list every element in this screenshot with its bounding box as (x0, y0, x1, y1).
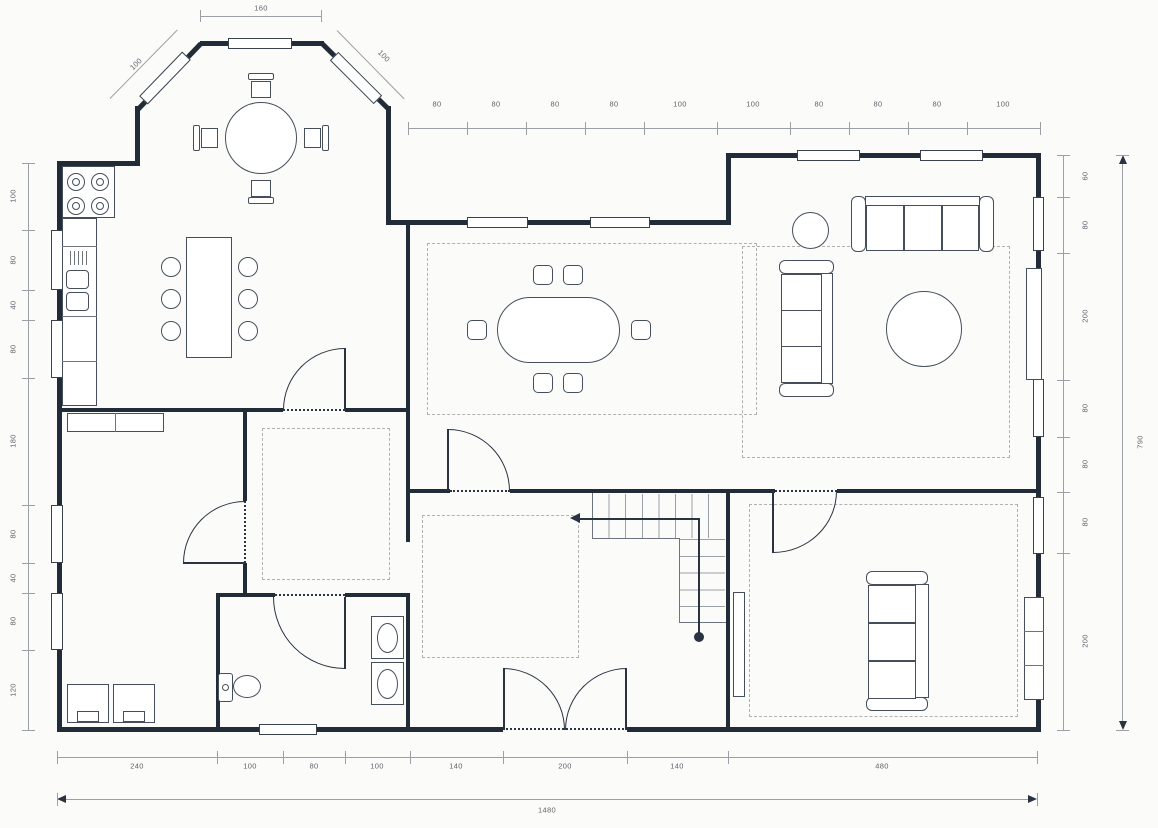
chair-back (193, 125, 200, 151)
stove-burner (72, 178, 80, 186)
window (1033, 379, 1044, 437)
door-leaf (772, 491, 774, 553)
door-arc (448, 429, 510, 491)
dimension-line (110, 30, 178, 99)
dimension-tick (526, 122, 527, 135)
sofa-cushion (866, 205, 904, 251)
window (590, 217, 650, 228)
dimension-tick (57, 751, 58, 764)
wall (406, 222, 410, 542)
seat-cushion (77, 711, 99, 722)
shelf-divider (1024, 665, 1044, 666)
shelf (1024, 597, 1044, 700)
sofa-back (821, 273, 833, 384)
dimension-tick (790, 122, 791, 135)
seat-cushion (123, 711, 145, 722)
dim-label: 100 (9, 189, 18, 202)
dimension-tick (1057, 492, 1070, 493)
dim-label: 180 (9, 434, 18, 447)
dim-label: 80 (933, 100, 942, 109)
sofa-cushion (781, 346, 822, 383)
stairs-outline (592, 538, 680, 539)
counter-divider (62, 361, 97, 362)
chair (161, 257, 181, 277)
dimension-tick (345, 751, 346, 764)
dim-label: 100 (996, 100, 1009, 109)
chair (238, 289, 258, 309)
french-door-left-arc (503, 668, 565, 730)
dimension-tick (1057, 253, 1070, 254)
dimension-total-line (62, 799, 1033, 800)
french-door-right-arc (565, 668, 627, 730)
dim-label: 200 (558, 762, 571, 771)
dimension-line (200, 16, 322, 17)
door-arc (273, 597, 345, 669)
dimension-line (57, 757, 1037, 758)
dimension-tick (22, 378, 35, 379)
dimension-tick (1116, 155, 1129, 156)
stove-burner (96, 178, 104, 186)
window (1033, 197, 1044, 251)
counter-divider (62, 316, 97, 317)
chair-seat (201, 128, 218, 148)
stairs-outline (679, 538, 680, 623)
dim-label: 80 (1081, 221, 1090, 230)
dim-label: 80 (9, 256, 18, 265)
dimension-line (28, 163, 29, 730)
sofa-arm (851, 196, 866, 252)
stairs-outline (592, 493, 593, 539)
dim-label: 80 (9, 345, 18, 354)
wall (837, 489, 1041, 493)
dimension-tick (1037, 751, 1038, 764)
dim-label: 100 (376, 48, 392, 64)
arrowhead-right (1028, 795, 1037, 803)
kitchen-table (186, 237, 232, 358)
dim-label: 40 (9, 301, 18, 310)
dim-label: 100 (370, 762, 383, 771)
stove-burner (96, 202, 104, 210)
dim-label: 80 (433, 100, 442, 109)
dim-label: 80 (9, 617, 18, 626)
dimension-tick (200, 10, 201, 22)
dimension-tick (1057, 730, 1070, 731)
stairs-direction-line (698, 518, 700, 638)
cabinet-divider (115, 413, 116, 432)
dim-label: 80 (1081, 518, 1090, 527)
stairs-direction-line (580, 518, 699, 520)
dim-label: 80 (551, 100, 560, 109)
chair (563, 265, 583, 285)
dim-label: 80 (310, 762, 319, 771)
dim-label: 140 (449, 762, 462, 771)
chair-back (322, 125, 329, 151)
wall (406, 595, 410, 730)
faucet-lines (74, 251, 75, 265)
dim-label: 80 (492, 100, 501, 109)
sofa-arm (866, 571, 928, 585)
dimension-tick (644, 122, 645, 135)
window (259, 724, 317, 735)
stairs-upper-flight (592, 494, 725, 538)
dimension-tick (908, 122, 909, 135)
wall (726, 489, 730, 732)
dim-label: 120 (9, 683, 18, 696)
dimension-tick (1116, 730, 1129, 731)
wall (345, 593, 410, 597)
shelf-divider (1024, 631, 1044, 632)
stairs-arrowhead (570, 513, 580, 523)
sideboard (1026, 268, 1042, 380)
sofa-cushion (868, 661, 916, 699)
dimension-line (1063, 155, 1064, 730)
dim-total-label: 1480 (538, 806, 556, 815)
wall (510, 489, 731, 493)
dim-label: 140 (670, 762, 683, 771)
door-leaf (503, 668, 505, 730)
dimension-tick (22, 290, 35, 291)
window (51, 505, 63, 563)
arrowhead-down (1119, 721, 1127, 730)
floor-plan: 160 100 100 80 80 80 80 100 100 80 80 80… (0, 0, 1158, 828)
dimension-line (408, 128, 1040, 129)
chair (238, 321, 258, 341)
dimension-tick (22, 650, 35, 651)
sofa-arm (779, 260, 834, 274)
sofa-cushion (868, 585, 916, 623)
window (330, 52, 382, 104)
round-rug (886, 291, 962, 367)
chair (161, 289, 181, 309)
toilet-bowl (233, 675, 261, 698)
dimension-tick (22, 505, 35, 506)
wall (216, 595, 220, 730)
window (920, 150, 983, 161)
chair-back (248, 197, 274, 204)
faucet-lines (78, 251, 79, 265)
dimension-tick (321, 10, 322, 22)
sofa-cushion (942, 205, 979, 251)
dim-label: 240 (130, 762, 143, 771)
side-table (792, 212, 829, 249)
dim-label: 480 (875, 762, 888, 771)
wall (216, 593, 275, 597)
counter-divider (62, 246, 97, 247)
chair (238, 257, 258, 277)
dimension-tick (22, 593, 35, 594)
sofa-cushion (904, 205, 942, 251)
arrowhead-left (57, 795, 66, 803)
chair (161, 321, 181, 341)
study-rug (262, 428, 390, 580)
dimension-tick (728, 751, 729, 764)
window (797, 150, 860, 161)
dim-label: 80 (815, 100, 824, 109)
dim-label: 80 (9, 530, 18, 539)
dimension-tick (22, 730, 35, 731)
sofa-back (915, 584, 929, 698)
chair-seat (251, 81, 271, 98)
wall (386, 220, 731, 225)
dim-label: 80 (1081, 404, 1090, 413)
wall (726, 489, 775, 493)
dimension-tick (22, 163, 35, 164)
wall (135, 106, 140, 165)
dimension-tick (57, 793, 58, 806)
door-leaf (183, 562, 245, 564)
wall (406, 489, 450, 493)
dimension-tick (408, 122, 409, 135)
dim-label: 100 (673, 100, 686, 109)
stairs-start-dot (694, 632, 704, 642)
kitchen-sink-basin (66, 292, 89, 311)
wall (627, 727, 1041, 732)
dimension-tick (22, 230, 35, 231)
dim-label: 160 (254, 4, 267, 13)
dim-label: 60 (1081, 172, 1090, 181)
dimension-tick (717, 122, 718, 135)
dim-label: 80 (610, 100, 619, 109)
sofa-cushion (781, 274, 822, 311)
dimension-tick (503, 751, 504, 764)
sofa-arm (979, 196, 994, 252)
door-leaf (447, 429, 449, 491)
sofa-cushion (781, 310, 822, 347)
chair-seat (251, 180, 271, 197)
dimension-tick (22, 320, 35, 321)
dimension-tick (1057, 155, 1070, 156)
radiator (733, 592, 745, 697)
dimension-tick (849, 122, 850, 135)
dimension-tick (1057, 380, 1070, 381)
dim-label: 200 (1081, 634, 1090, 647)
stairs-outline (679, 622, 726, 623)
dim-total-label: 790 (1136, 435, 1145, 448)
door-arc (283, 348, 345, 410)
sofa-cushion (868, 623, 916, 661)
dimension-tick (410, 751, 411, 764)
wall (726, 153, 1041, 158)
dim-label: 80 (874, 100, 883, 109)
dimension-tick (283, 751, 284, 764)
dim-label: 80 (1081, 460, 1090, 469)
wall (243, 563, 247, 597)
wall (345, 408, 410, 412)
dim-label: 100 (128, 56, 144, 72)
dimension-tick (217, 751, 218, 764)
sofa-arm (779, 383, 834, 397)
door-arc (183, 501, 245, 563)
door-leaf (344, 348, 346, 410)
faucet-lines (82, 251, 83, 265)
dimension-tick (1057, 437, 1070, 438)
kitchen-sink-basin (66, 270, 89, 289)
chair (563, 373, 583, 393)
hall-rug (422, 515, 579, 658)
dim-label: 100 (746, 100, 759, 109)
dimension-tick (585, 122, 586, 135)
wall (243, 410, 247, 501)
window (1033, 497, 1044, 554)
dimension-tick (627, 751, 628, 764)
dimension-tick (1057, 197, 1070, 198)
dimension-tick (467, 122, 468, 135)
stove-burner (72, 202, 80, 210)
sofa-arm (866, 697, 928, 711)
faucet-lines (86, 251, 87, 265)
chair (533, 265, 553, 285)
sink-basin (377, 623, 398, 653)
window (228, 38, 292, 49)
oval-dining-table (497, 297, 620, 363)
chair (631, 320, 651, 340)
chair (467, 320, 487, 340)
window (51, 593, 63, 650)
dimension-tick (1037, 793, 1038, 806)
dim-label: 40 (9, 574, 18, 583)
dimension-tick (967, 122, 968, 135)
chair-back (248, 73, 274, 80)
toilet-button (222, 684, 229, 691)
window (467, 217, 528, 228)
wall (59, 408, 283, 412)
faucet-lines (70, 251, 71, 265)
arrowhead-up (1119, 155, 1127, 164)
dim-label: 200 (1081, 309, 1090, 322)
door-leaf (344, 597, 346, 669)
dimension-tick (1040, 122, 1041, 135)
dimension-tick (22, 563, 35, 564)
chair (533, 373, 553, 393)
wall (726, 153, 731, 225)
chair-seat (304, 128, 321, 148)
dimension-tick (1057, 553, 1070, 554)
sink-basin (377, 669, 398, 699)
dimension-total-line (1122, 160, 1123, 726)
stairs-lower-flight (679, 539, 725, 622)
door-leaf (625, 668, 627, 730)
door-opening (275, 594, 345, 596)
wall (386, 106, 391, 225)
dim-label: 100 (243, 762, 256, 771)
round-table (225, 102, 297, 174)
